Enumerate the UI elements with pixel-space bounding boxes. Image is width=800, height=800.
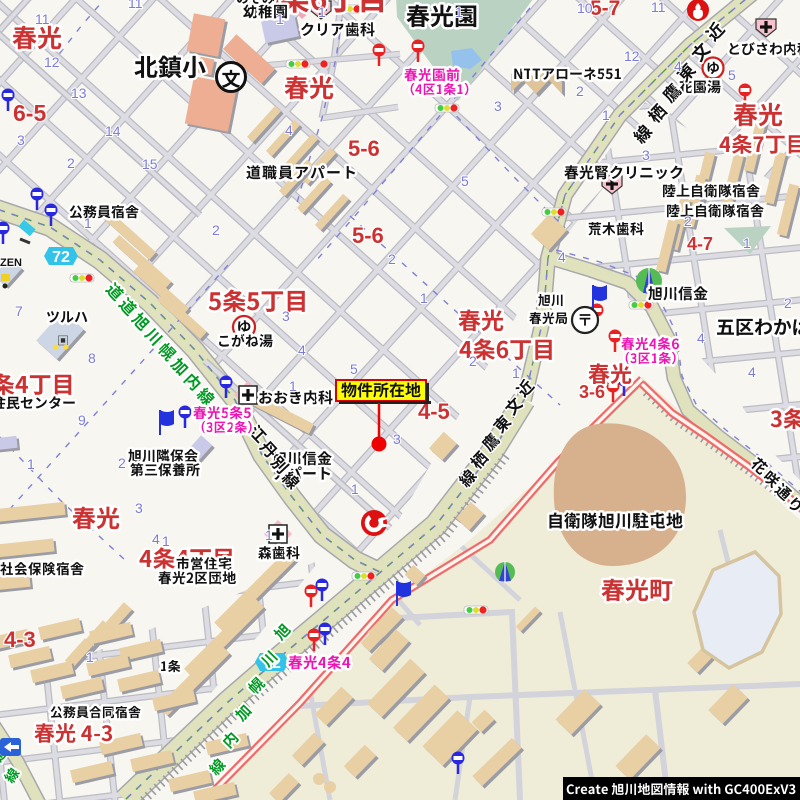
svg-text:12: 12 (624, 48, 640, 64)
svg-text:4: 4 (285, 122, 293, 138)
svg-text:15: 15 (142, 156, 158, 172)
svg-text:1: 1 (602, 107, 610, 123)
svg-text:5: 5 (728, 67, 736, 83)
svg-text:4: 4 (697, 330, 705, 346)
svg-text:4: 4 (152, 531, 160, 547)
svg-text:ZEN: ZEN (0, 257, 22, 269)
svg-text:11: 11 (128, 0, 143, 11)
svg-text:4: 4 (558, 249, 566, 265)
svg-text:5-6: 5-6 (348, 136, 380, 161)
svg-text:1: 1 (265, 527, 273, 543)
svg-text:1: 1 (318, 4, 326, 20)
svg-text:2: 2 (576, 83, 584, 99)
svg-text:4: 4 (674, 58, 682, 74)
svg-text:2: 2 (118, 455, 126, 471)
svg-text:3: 3 (393, 431, 401, 447)
svg-text:2: 2 (684, 213, 692, 229)
svg-text:1: 1 (743, 235, 751, 251)
svg-text:1: 1 (420, 290, 428, 306)
svg-text:13: 13 (71, 85, 87, 101)
svg-text:4: 4 (748, 364, 756, 380)
svg-text:2: 2 (784, 295, 792, 311)
svg-text:5: 5 (461, 173, 469, 189)
svg-text:4-7: 4-7 (687, 234, 713, 254)
svg-text:3: 3 (135, 500, 143, 516)
svg-text:1: 1 (27, 456, 35, 472)
svg-text:9: 9 (78, 412, 86, 428)
svg-text:5: 5 (350, 361, 358, 377)
svg-text:4: 4 (298, 342, 306, 358)
svg-text:7: 7 (15, 303, 23, 319)
svg-text:5-7: 5-7 (590, 0, 620, 20)
svg-text:11: 11 (35, 11, 50, 27)
svg-text:72: 72 (52, 249, 70, 266)
svg-text:1: 1 (162, 533, 170, 549)
svg-text:3-6: 3-6 (579, 382, 605, 402)
svg-text:2: 2 (388, 251, 396, 267)
svg-text:1: 1 (455, 4, 463, 20)
svg-text:11: 11 (651, 0, 666, 15)
svg-text:1: 1 (86, 649, 94, 665)
svg-text:1: 1 (289, 378, 297, 394)
svg-text:6-5: 6-5 (13, 100, 46, 126)
svg-text:1: 1 (512, 365, 520, 381)
svg-text:10: 10 (577, 0, 593, 16)
svg-text:4-3: 4-3 (4, 627, 36, 652)
svg-text:8: 8 (88, 350, 96, 366)
svg-text:1: 1 (84, 215, 92, 231)
svg-text:12: 12 (44, 54, 60, 70)
svg-text:2: 2 (212, 222, 220, 238)
svg-text:1: 1 (351, 481, 359, 497)
svg-text:2: 2 (67, 155, 75, 171)
svg-text:3: 3 (642, 147, 650, 163)
svg-text:14: 14 (105, 123, 121, 139)
svg-text:1: 1 (276, 11, 284, 27)
svg-text:3: 3 (494, 98, 502, 114)
svg-text:3: 3 (17, 132, 25, 148)
svg-text:2: 2 (469, 353, 477, 369)
svg-text:3: 3 (282, 308, 290, 324)
svg-text:5-6: 5-6 (352, 223, 384, 248)
